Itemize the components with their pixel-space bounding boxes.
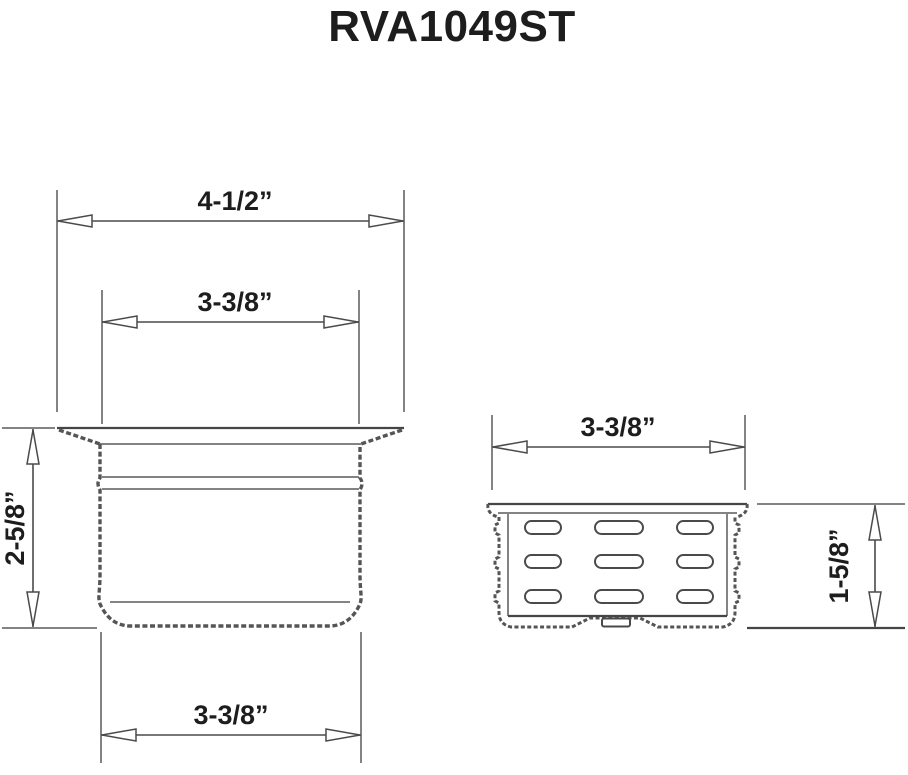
slot: [677, 521, 713, 534]
basket-drain-recess: [602, 619, 630, 627]
slot: [677, 555, 713, 568]
arrowhead-right-icon: [710, 441, 744, 453]
flange-tip-left: [59, 430, 100, 444]
dimension-basket-width: 3-3/8”: [492, 412, 745, 490]
basket-slots: [525, 521, 713, 603]
dimension-label: 3-3/8”: [580, 412, 655, 442]
arrowhead-left-icon: [102, 729, 136, 741]
product-code-title: RVA1049ST: [328, 2, 575, 51]
arrowhead-right-icon: [369, 215, 403, 227]
slot: [525, 521, 561, 534]
slot: [525, 590, 561, 603]
slot: [677, 590, 713, 603]
arrowhead-up-icon: [869, 506, 881, 540]
strainer-body-side-section: [57, 428, 404, 626]
slot: [595, 590, 643, 603]
dimension-basket-height: 1-5/8”: [747, 504, 905, 628]
dimension-label: 2-5/8”: [0, 490, 30, 565]
dimension-label: 4-1/2”: [197, 186, 272, 216]
slot: [595, 521, 643, 534]
dimension-label: 3-3/8”: [193, 700, 268, 730]
dimension-body-height: 2-5/8”: [0, 428, 97, 628]
arrowhead-right-icon: [326, 729, 360, 741]
dimension-label: 1-5/8”: [824, 528, 854, 603]
arrowhead-left-icon: [103, 316, 137, 328]
arrowhead-left-icon: [493, 441, 527, 453]
slot: [595, 555, 643, 568]
basket-rim-curl-right: [737, 504, 747, 517]
dimension-diagram: RVA1049ST 4-1/2” 3-3/8”: [0, 0, 908, 770]
dimension-body-width-top: 3-3/8”: [102, 287, 359, 424]
dimension-body-width-bottom: 3-3/8”: [101, 632, 361, 763]
technical-drawing-page: RVA1049ST 4-1/2” 3-3/8”: [0, 0, 908, 770]
arrowhead-down-icon: [869, 592, 881, 626]
arrowhead-down-icon: [27, 592, 39, 626]
flange-tip-right: [361, 430, 402, 444]
basket-rim-curl-left: [488, 504, 498, 517]
arrowhead-right-icon: [324, 316, 358, 328]
arrowhead-left-icon: [58, 215, 92, 227]
slot: [525, 555, 561, 568]
arrowhead-up-icon: [27, 430, 39, 464]
body-outer-contour: [98, 444, 362, 626]
dimension-label: 3-3/8”: [197, 287, 272, 317]
basket-side-view: [488, 504, 747, 627]
